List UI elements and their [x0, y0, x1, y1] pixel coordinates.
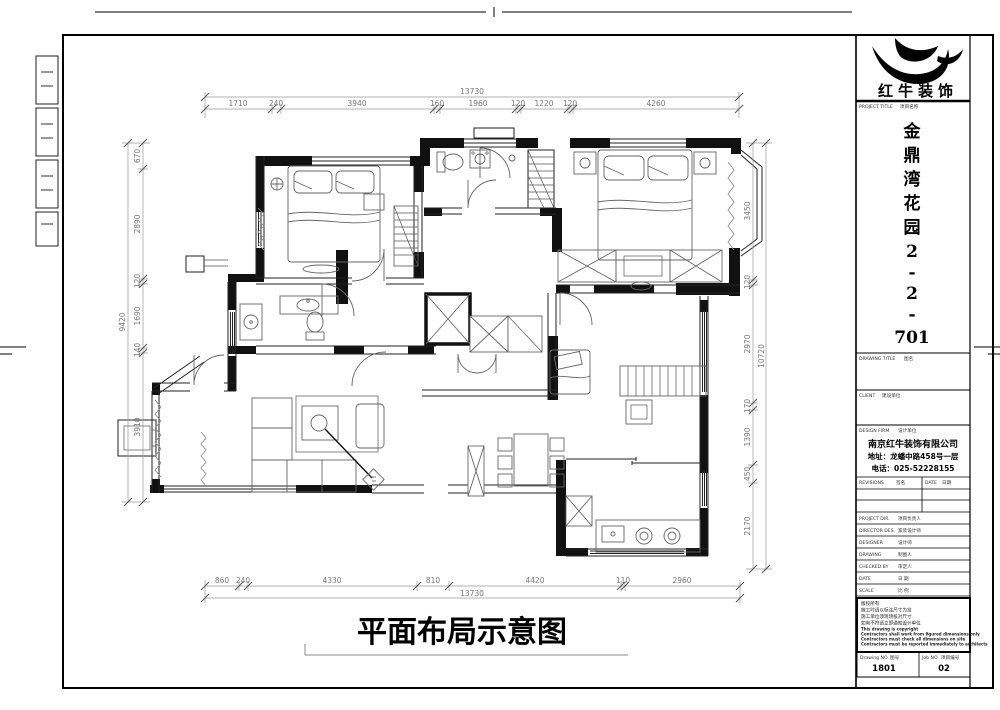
svg-text:2: 2	[906, 242, 918, 262]
svg-text:701: 701	[894, 328, 930, 348]
svg-text:160: 160	[430, 99, 445, 108]
svg-text:制图人: 制图人	[898, 551, 912, 558]
floor-plan-walls	[150, 138, 741, 556]
svg-text:REVISIONS: REVISIONS	[859, 480, 884, 486]
firm-address: 地址：龙蟠中路458号一层	[868, 451, 959, 461]
svg-text:建设单位: 建设单位	[882, 392, 901, 399]
number-box: Drawing NO 图号 Job NO 项目编号 1801 02	[857, 652, 970, 677]
bed-double-master	[574, 150, 716, 260]
svg-text:版权所有: 版权所有	[861, 600, 880, 607]
drawing-sheet: 13730 1710 240 3940 160 1960 120 1220 12…	[0, 0, 1000, 710]
svg-text:设计单位: 设计单位	[898, 427, 917, 434]
dim-bottom-overall: 13730	[460, 589, 484, 598]
svg-text:240: 240	[236, 576, 251, 585]
svg-text:图号: 图号	[890, 655, 900, 661]
shaft-boxes	[426, 294, 542, 352]
svg-text:140: 140	[133, 343, 142, 358]
svg-text:1390: 1390	[743, 427, 752, 446]
revisions-table: REVISIONS 签名 DATE 日期	[856, 477, 970, 512]
svg-text:DESIGNER: DESIGNER	[859, 540, 884, 546]
svg-text:4420: 4420	[525, 576, 544, 585]
svg-text:施工时请以标注尺寸为准: 施工时请以标注尺寸为准	[861, 607, 912, 614]
redniu-logo-icon	[872, 38, 963, 84]
svg-text:110: 110	[616, 576, 631, 585]
title-block: 红牛装饰 PROJECT TITLE 项目名称 金 鼎 湾 花 园 2 - 2 …	[856, 38, 988, 677]
svg-text:120: 120	[563, 99, 578, 108]
personnel-rows: PROJECT DIR. 项目负责人 DIRECTOR DES. 家装设计师 D…	[856, 512, 970, 596]
svg-text:-: -	[908, 263, 915, 283]
svg-text:日 期: 日 期	[898, 576, 909, 582]
caption-text: 平面布局示意图	[357, 615, 567, 650]
firm-name: 南京红牛装饰有限公司	[868, 438, 958, 450]
svg-text:2970: 2970	[743, 334, 752, 353]
svg-text:1710: 1710	[228, 99, 247, 108]
svg-text:120: 120	[133, 274, 142, 289]
dim-top-overall: 13730	[460, 87, 484, 96]
svg-text:450: 450	[743, 467, 752, 482]
kitchen-fixtures	[566, 496, 700, 552]
svg-text:PROJECT DIR.: PROJECT DIR.	[859, 516, 890, 522]
fold-mark-boxes	[36, 56, 58, 246]
svg-text:3910: 3910	[133, 417, 142, 436]
svg-text:PROJECT TITLE: PROJECT TITLE	[859, 104, 893, 110]
living-room-set	[252, 396, 384, 492]
svg-text:1220: 1220	[534, 99, 553, 108]
svg-text:860: 860	[215, 576, 230, 585]
bed-single	[550, 350, 706, 424]
drawing-no-value: 1801	[872, 664, 896, 674]
svg-text:项目编号: 项目编号	[941, 654, 960, 661]
copyright-notes: 版权所有 施工时请以标注尺寸为准 施工单位须现场核对尺寸 如有不符请立即通知设计…	[857, 598, 988, 652]
svg-text:审定人: 审定人	[898, 563, 912, 570]
svg-text:项目负责人: 项目负责人	[898, 515, 921, 522]
dim-right-overall: 10720	[757, 344, 766, 368]
svg-text:SCALE: SCALE	[859, 588, 874, 594]
svg-text:1690: 1690	[133, 306, 142, 325]
bath1-fixtures	[240, 296, 338, 340]
svg-text:图名: 图名	[904, 355, 913, 362]
svg-text:240: 240	[269, 99, 284, 108]
svg-text:DATE: DATE	[859, 576, 871, 582]
entry-door-arc	[480, 148, 510, 178]
sheet-frame	[63, 35, 993, 688]
svg-text:施工单位须现场核对尺寸: 施工单位须现场核对尺寸	[861, 613, 912, 620]
svg-text:810: 810	[426, 576, 441, 585]
svg-text:湾: 湾	[904, 169, 921, 190]
svg-text:设计师: 设计师	[898, 539, 912, 546]
svg-text:Job NO: Job NO	[921, 655, 938, 661]
svg-text:DRAWING: DRAWING	[859, 552, 882, 558]
dim-left-overall: 9420	[118, 312, 127, 331]
svg-text:3940: 3940	[347, 99, 366, 108]
svg-text:项目名称: 项目名称	[900, 103, 919, 110]
svg-text:120: 120	[511, 99, 526, 108]
brand-name: 红牛装饰	[878, 82, 958, 100]
svg-text:金: 金	[903, 121, 922, 142]
svg-text:-: -	[908, 305, 915, 325]
svg-text:120: 120	[743, 275, 752, 290]
svg-text:170: 170	[743, 399, 752, 414]
trim-marks	[0, 7, 1000, 354]
svg-text:园: 园	[904, 218, 921, 238]
svg-text:Contractors must be reported i: Contractors must be reported immediately…	[861, 642, 988, 647]
svg-text:2890: 2890	[133, 214, 142, 233]
svg-text:CLIENT: CLIENT	[859, 393, 875, 399]
svg-text:鼎: 鼎	[904, 146, 921, 166]
svg-text:签名: 签名	[896, 479, 905, 486]
svg-text:比 例: 比 例	[898, 587, 909, 594]
svg-text:如有不符请立即通知设计单位: 如有不符请立即通知设计单位	[861, 620, 921, 627]
caption-block: 平面布局示意图	[305, 615, 628, 655]
dining-set	[498, 434, 564, 487]
svg-text:4260: 4260	[646, 99, 665, 108]
svg-text:4330: 4330	[322, 576, 341, 585]
svg-text:2170: 2170	[743, 516, 752, 535]
project-name: 金 鼎 湾 花 园 2 - 2 - 701	[894, 121, 930, 348]
svg-text:670: 670	[133, 149, 142, 164]
svg-text:CHECKED BY: CHECKED BY	[859, 564, 889, 570]
svg-text:日期: 日期	[942, 480, 952, 486]
svg-text:3450: 3450	[743, 201, 752, 220]
firm-phone: 电话：025-52228155	[871, 463, 954, 473]
svg-text:2: 2	[906, 284, 918, 304]
svg-text:1960: 1960	[468, 99, 487, 108]
cad-canvas: 13730 1710 240 3940 160 1960 120 1220 12…	[0, 0, 1000, 710]
svg-text:DIRECTOR DES.: DIRECTOR DES.	[859, 528, 895, 534]
svg-text:家装设计师: 家装设计师	[898, 527, 921, 534]
svg-text:Drawing NO: Drawing NO	[860, 655, 888, 661]
job-no-value: 02	[938, 664, 950, 674]
svg-text:DATE: DATE	[925, 480, 937, 486]
svg-text:2960: 2960	[672, 576, 691, 585]
svg-text:DRAWING TITLE: DRAWING TITLE	[859, 356, 895, 362]
svg-text:DESIGN FIRM: DESIGN FIRM	[859, 428, 889, 434]
svg-text:花: 花	[904, 193, 921, 214]
